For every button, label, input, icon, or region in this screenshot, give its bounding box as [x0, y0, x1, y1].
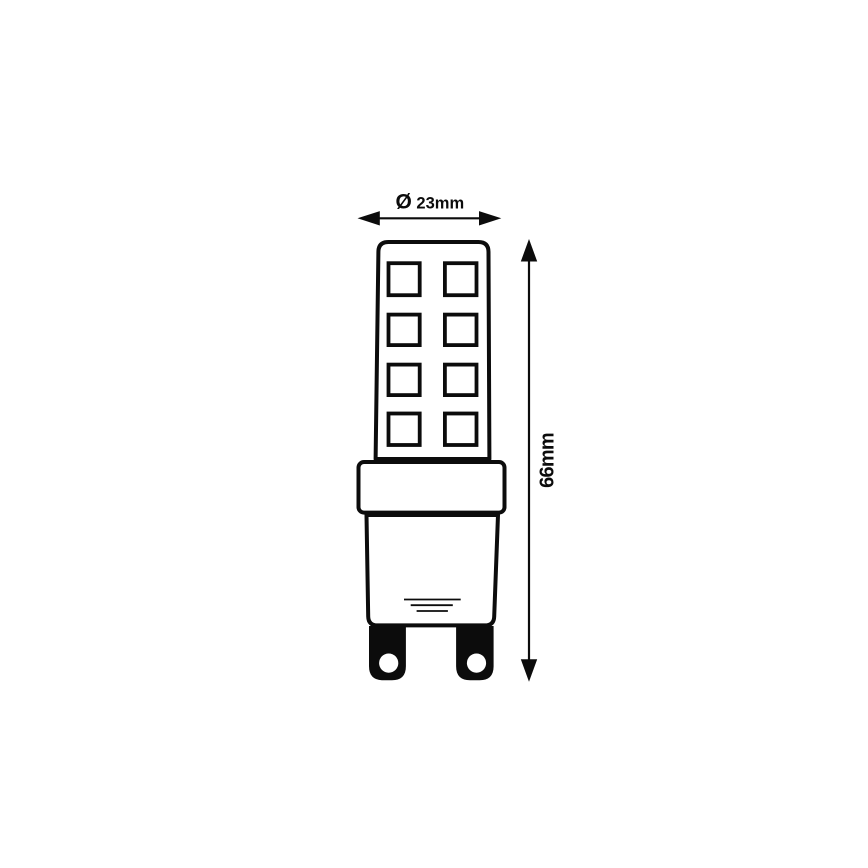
- svg-text:Ø 23mm: Ø 23mm: [396, 191, 465, 214]
- svg-text:66mm: 66mm: [537, 433, 559, 488]
